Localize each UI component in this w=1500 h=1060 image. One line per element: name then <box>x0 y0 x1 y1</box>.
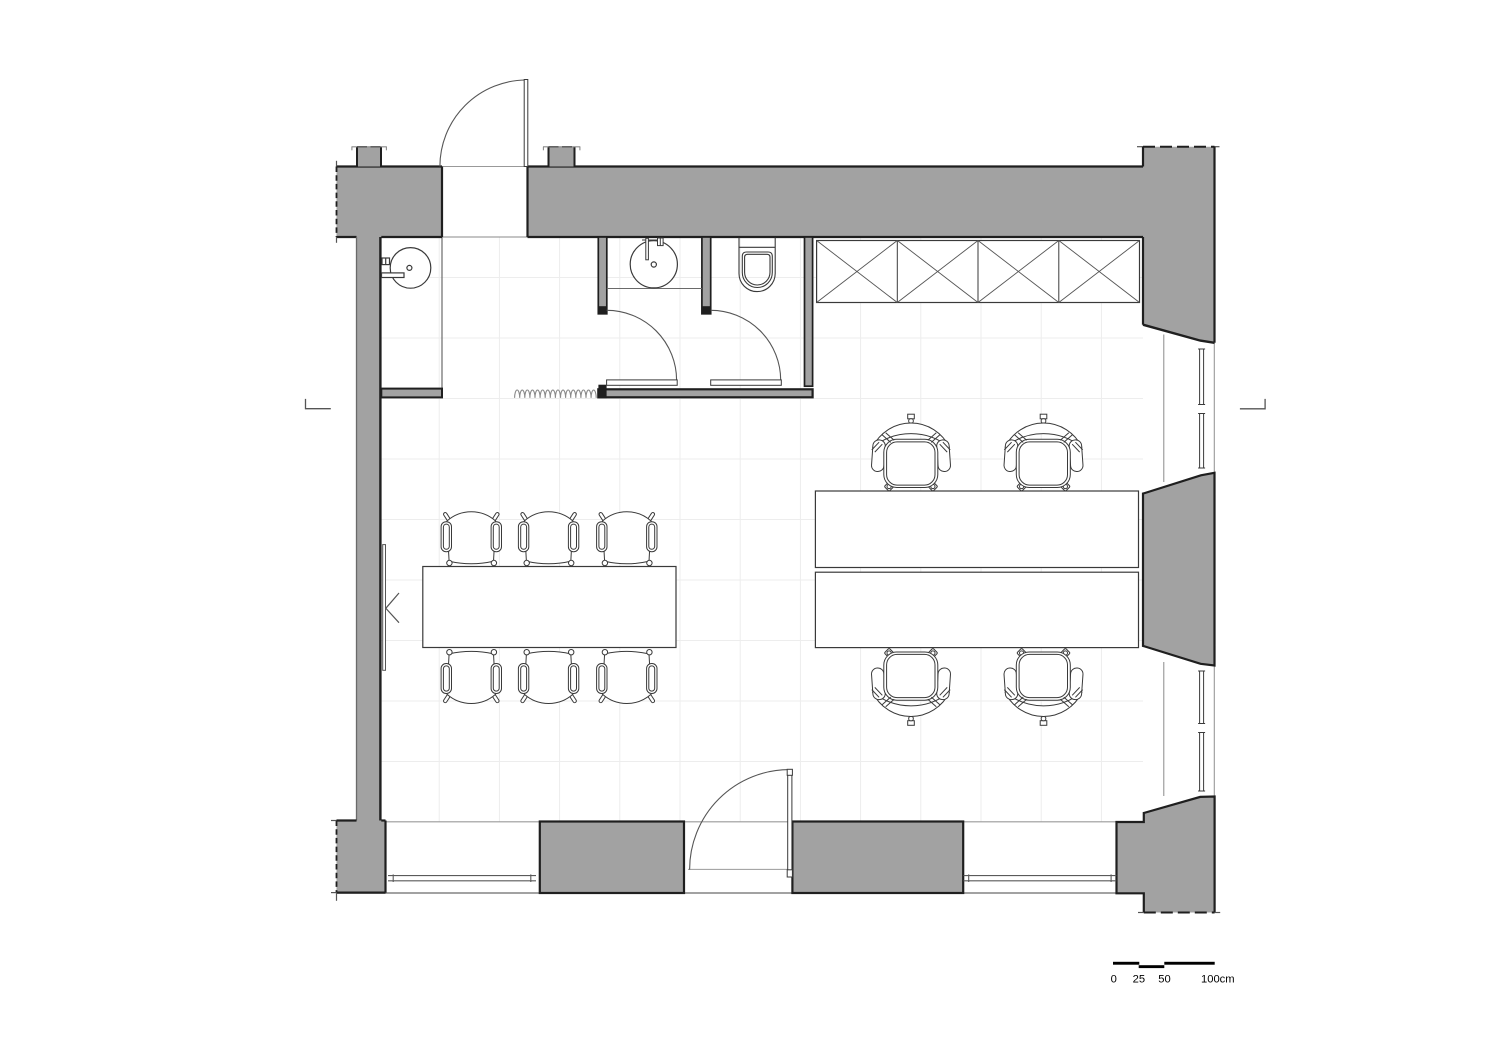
svg-text:100cm: 100cm <box>1201 974 1235 986</box>
svg-text:25: 25 <box>1133 974 1145 986</box>
svg-text:0: 0 <box>1111 974 1117 986</box>
svg-text:50: 50 <box>1158 974 1170 986</box>
